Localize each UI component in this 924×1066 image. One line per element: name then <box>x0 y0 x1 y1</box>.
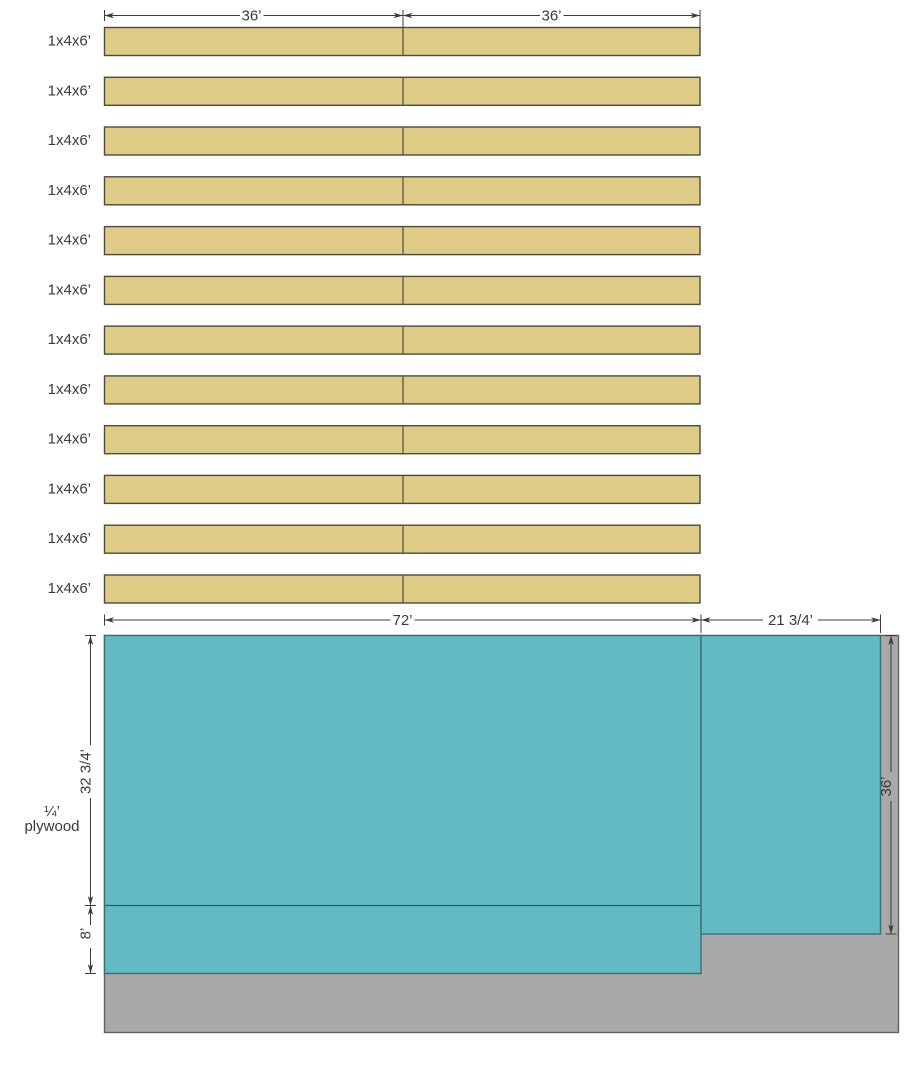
svg-text:1x4x6’: 1x4x6’ <box>48 331 91 348</box>
svg-text:36’: 36’ <box>241 7 261 24</box>
svg-text:1x4x6’: 1x4x6’ <box>48 232 91 249</box>
svg-text:1x4x6’: 1x4x6’ <box>48 530 91 547</box>
svg-text:1x4x6’: 1x4x6’ <box>48 182 91 199</box>
svg-text:1x4x6’: 1x4x6’ <box>48 281 91 298</box>
svg-text:72’: 72’ <box>392 612 412 629</box>
svg-text:21 3/4’: 21 3/4’ <box>768 612 813 629</box>
svg-text:1x4x6’: 1x4x6’ <box>48 580 91 597</box>
svg-text:32 3/4’: 32 3/4’ <box>78 749 95 794</box>
svg-text:1x4x6’: 1x4x6’ <box>48 33 91 50</box>
svg-text:1x4x6’: 1x4x6’ <box>48 381 91 398</box>
svg-text:plywood: plywood <box>24 818 79 835</box>
svg-text:36’: 36’ <box>541 7 561 24</box>
svg-text:1x4x6’: 1x4x6’ <box>48 480 91 497</box>
svg-text:1x4x6’: 1x4x6’ <box>48 132 91 149</box>
svg-text:1x4x6’: 1x4x6’ <box>48 431 91 448</box>
svg-text:1x4x6’: 1x4x6’ <box>48 82 91 99</box>
svg-text:36’: 36’ <box>878 776 895 796</box>
svg-text:8’: 8’ <box>78 928 95 940</box>
